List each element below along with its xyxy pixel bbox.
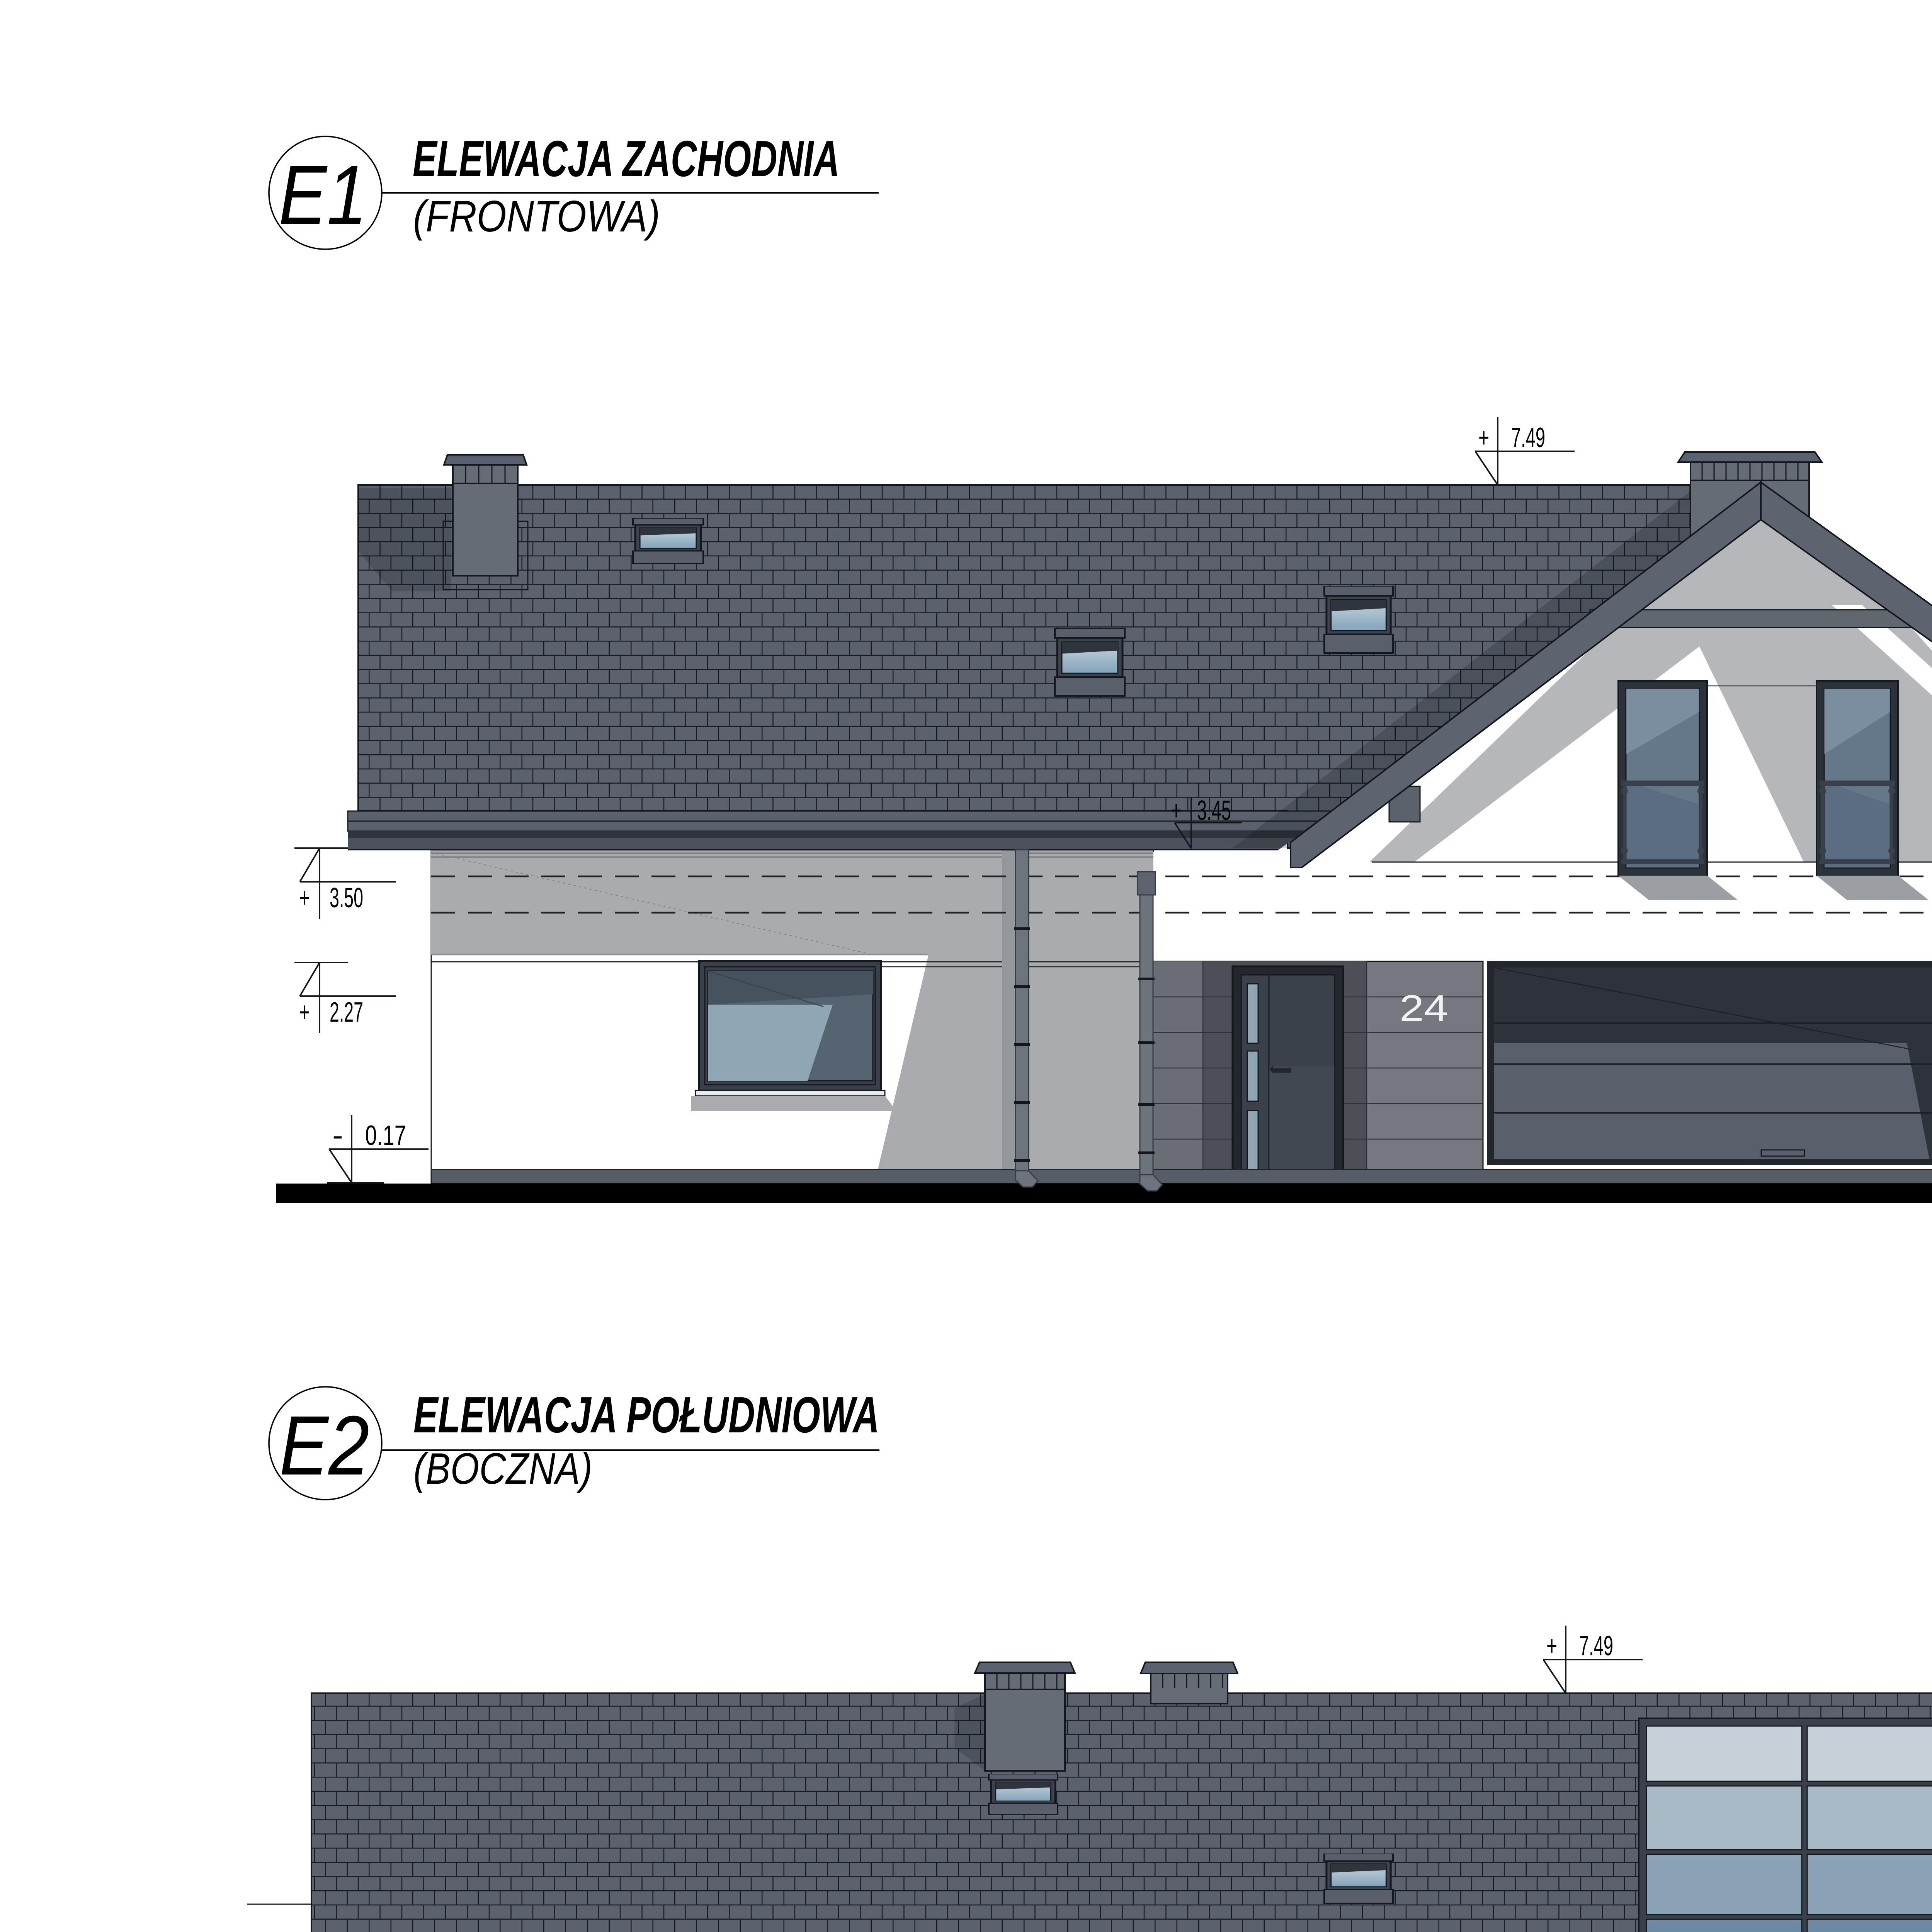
svg-text:+: + [1478, 422, 1489, 453]
svg-text:E1: E1 [279, 148, 367, 242]
svg-text:E2: E2 [279, 1399, 369, 1493]
svg-text:(FRONTOWA): (FRONTOWA) [413, 192, 660, 241]
svg-text:0.17: 0.17 [365, 1120, 406, 1151]
svg-text:ELEWACJA ZACHODNIA: ELEWACJA ZACHODNIA [413, 130, 840, 187]
svg-text:24: 24 [1400, 988, 1448, 1029]
svg-text:7.49: 7.49 [1579, 1631, 1613, 1662]
svg-text:-: - [332, 1120, 343, 1151]
svg-text:3.45: 3.45 [1197, 795, 1231, 826]
svg-text:+: + [299, 883, 310, 913]
svg-text:+: + [1171, 795, 1182, 826]
svg-text:+: + [299, 997, 310, 1028]
svg-text:2.27: 2.27 [330, 997, 363, 1028]
svg-text:ELEWACJA POŁUDNIOWA: ELEWACJA POŁUDNIOWA [413, 1386, 879, 1443]
svg-text:(BOCZNA): (BOCZNA) [413, 1444, 592, 1493]
svg-text:3.50: 3.50 [330, 883, 363, 913]
svg-text:+: + [1546, 1631, 1557, 1662]
svg-text:7.49: 7.49 [1511, 422, 1545, 453]
